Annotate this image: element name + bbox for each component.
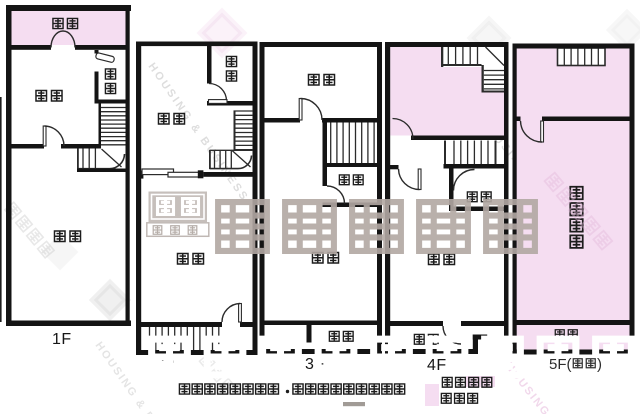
svg-text:1F: 1F [52, 331, 72, 348]
svg-text:): ) [597, 356, 602, 373]
svg-text:5F(: 5F( [549, 356, 572, 373]
svg-text:4F: 4F [427, 357, 447, 374]
